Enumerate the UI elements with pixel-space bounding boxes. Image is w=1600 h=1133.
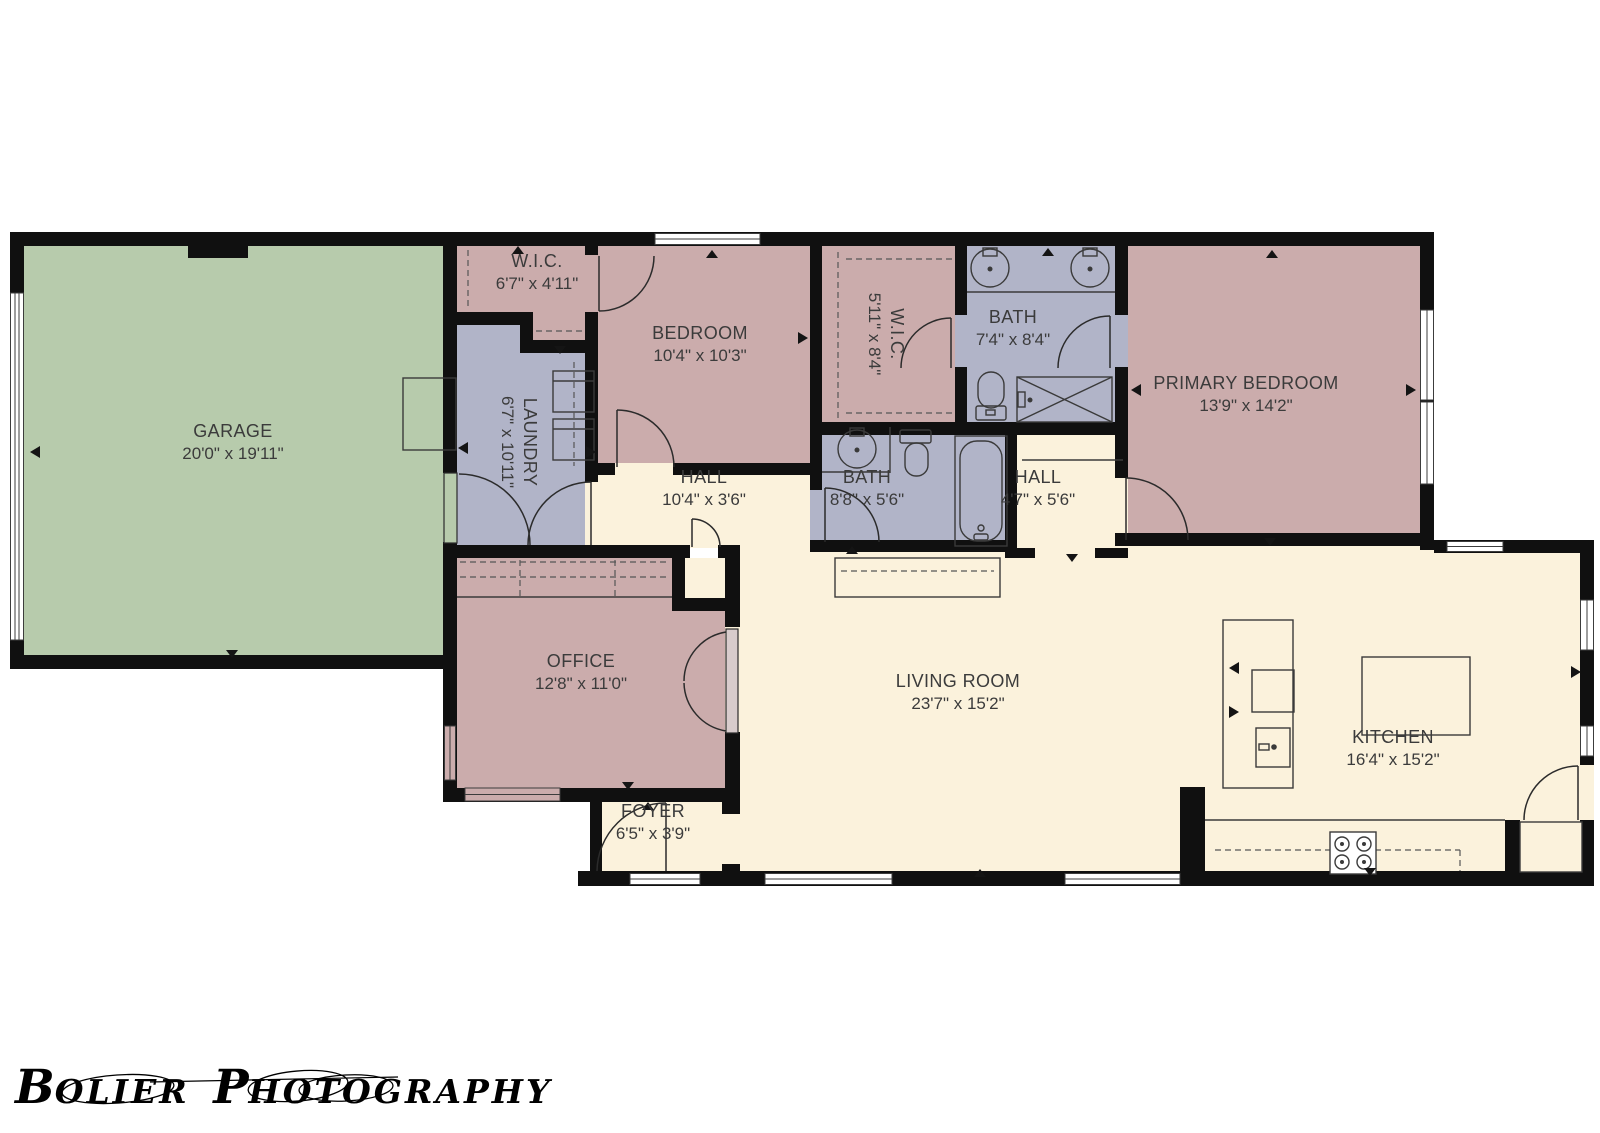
watermark: BOLIER PHOTOGRAPHY [13,1060,553,1115]
label-wic1: W.I.C.6'7" x 4'11" [496,250,579,294]
plan-overlay: BOLIER PHOTOGRAPHY [0,0,1600,1133]
label-laundry: LAUNDRY6'7" x 10'11" [497,396,541,488]
label-living-room: LIVING ROOM23'7" x 15'2" [896,670,1020,714]
walls [10,232,1594,886]
watermark-text: BOLIER PHOTOGRAPHY [13,1060,553,1115]
bathtub-icon [955,436,1007,546]
label-bath1: BATH7'4" x 8'4" [976,306,1050,350]
kitchen-cabinet [1520,822,1582,872]
label-hall1: HALL10'4" x 3'6" [662,466,746,510]
floor-plan: BOLIER PHOTOGRAPHY GARAGE20'0" x 19'11" … [0,0,1600,1133]
windows [11,234,1594,885]
toilet-icon [978,372,1004,408]
label-office: OFFICE12'8" x 11'0" [535,650,627,694]
garage-laundry-door-leaf [444,473,457,543]
label-bedroom: BEDROOM10'4" x 10'3" [652,322,748,366]
label-kitchen: KITCHEN16'4" x 15'2" [1346,726,1439,770]
kitchen-island [1362,657,1470,735]
garage-door [11,293,24,640]
fridge-icon [1252,670,1294,712]
label-garage: GARAGE20'0" x 19'11" [182,420,283,464]
label-primary-bedroom: PRIMARY BEDROOM13'9" x 14'2" [1153,372,1338,416]
label-bath2: BATH8'8" x 5'6" [830,466,904,510]
wall-ticks [30,246,1581,877]
label-hall2: HALL4'7" x 5'6" [1001,466,1075,510]
label-foyer: FOYER6'5" x 3'9" [616,800,690,844]
kitchen-counter [1223,620,1293,788]
media-console [835,558,1000,597]
office-door-leaf [726,629,738,733]
label-wic2: W.I.C.5'11" x 8'4" [864,293,908,376]
